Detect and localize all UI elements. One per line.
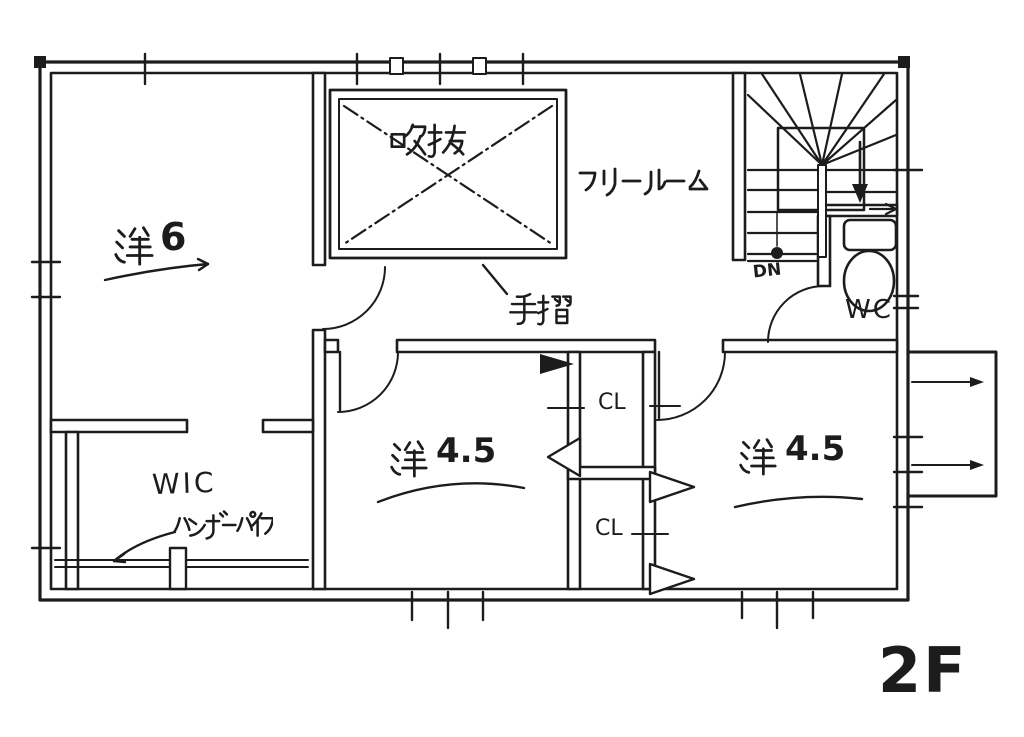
closet-label-lower: CL	[595, 518, 623, 540]
kanji-tesuri-glyph	[507, 290, 573, 328]
kanji-you-glyph	[737, 436, 777, 476]
stair-dn-dot	[771, 247, 783, 259]
room-label-wc: WC	[845, 297, 893, 323]
balcony	[908, 352, 996, 496]
atrium-void	[330, 90, 566, 258]
closet-label-upper: CL	[598, 392, 626, 414]
floor-label: 2F	[878, 640, 968, 702]
stairs-dn-label: DN	[752, 262, 782, 282]
katakana-hanger-pipe-glyph	[173, 510, 273, 540]
kanji-fukinuke-glyph	[388, 120, 466, 162]
katakana-free-room-glyph	[577, 166, 709, 198]
kanji-you-glyph	[388, 438, 428, 478]
room-label-wic: WIC	[152, 469, 217, 499]
balcony-arrows	[912, 377, 984, 470]
floor-plan-drawing	[0, 0, 1024, 737]
kanji-you-glyph	[112, 224, 154, 266]
room-yo45-center-size: 4.5	[436, 434, 496, 468]
floor-plan-canvas: 洋6 6 吹抜 フリールーム	[0, 0, 1024, 737]
room-yo6-size: 6	[160, 218, 186, 256]
room-yo45-right-size: 4.5	[785, 432, 845, 466]
